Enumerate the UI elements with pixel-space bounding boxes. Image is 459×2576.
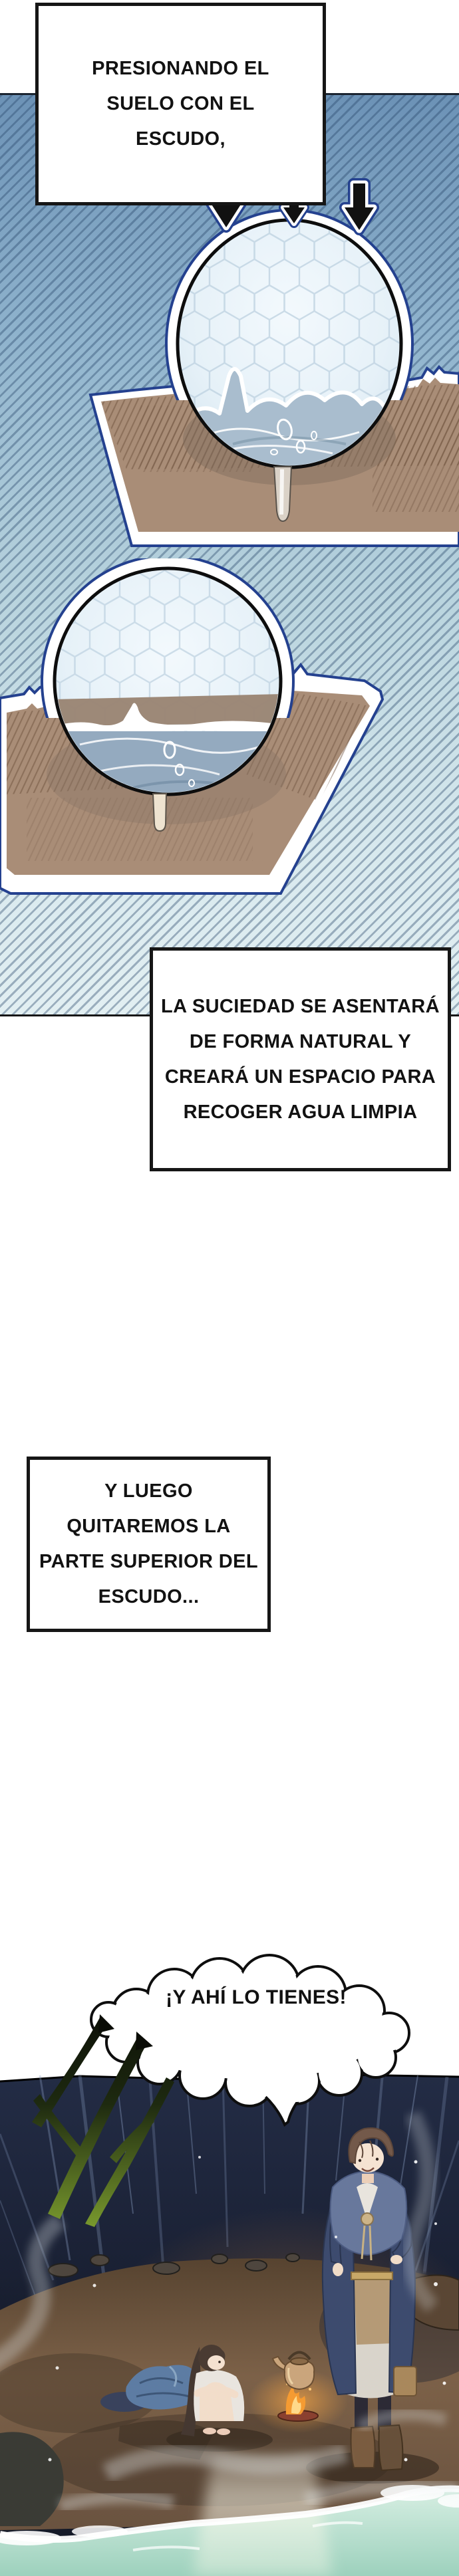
caption-line: PRESIONANDO EL (92, 51, 269, 86)
comic-page: PRESIONANDO EL SUELO CON EL ESCUDO, LA S… (0, 0, 459, 2576)
man-robe (354, 2274, 392, 2345)
caption-line: Y LUEGO (104, 1474, 193, 1509)
sediment-layer (53, 694, 283, 726)
caption-line: DE FORMA NATURAL Y (190, 1024, 411, 1060)
caption-line: QUITAREMOS LA (67, 1509, 230, 1544)
panel-shield-pressed (0, 166, 459, 578)
caption-line: SUELO CON EL (106, 86, 254, 122)
caption-box-2: LA SUCIEDAD SE ASENTARÁ DE FORMA NATURAL… (150, 947, 451, 1171)
caption-box-3: Y LUEGO QUITAREMOS LA PARTE SUPERIOR DEL… (27, 1457, 271, 1632)
caption-line: ESCUDO... (98, 1580, 200, 1615)
brooch (361, 2213, 373, 2225)
water-stream-highlight (281, 469, 282, 515)
belt-pouch (394, 2367, 416, 2396)
caption-line: ESCUDO, (136, 122, 226, 157)
plant-blades (32, 2014, 174, 2227)
girl-foot (217, 2428, 230, 2435)
girl-face (208, 2355, 225, 2370)
caption-line: RECOGER AGUA LIMPIA (184, 1095, 418, 1130)
caption-box-1: PRESIONANDO EL SUELO CON EL ESCUDO, (35, 3, 326, 205)
panel-settled-water (0, 558, 459, 997)
down-arrow-icon (345, 183, 374, 230)
caption-line: PARTE SUPERIOR DEL (39, 1544, 258, 1580)
man-hand (390, 2255, 402, 2264)
man-neck (362, 2174, 374, 2183)
caption-line: LA SUCIEDAD SE ASENTARÁ (161, 989, 440, 1024)
man-boot (379, 2425, 403, 2470)
caption-line: CREARÁ UN ESPACIO PARA (165, 1060, 436, 1095)
water-stream (153, 794, 166, 831)
man-belt (351, 2272, 392, 2280)
man-boot (351, 2426, 375, 2468)
plant-decoration (7, 2001, 180, 2230)
girl-foot (203, 2428, 216, 2434)
man-hand (333, 2263, 343, 2276)
kettle-lid (291, 2358, 308, 2365)
